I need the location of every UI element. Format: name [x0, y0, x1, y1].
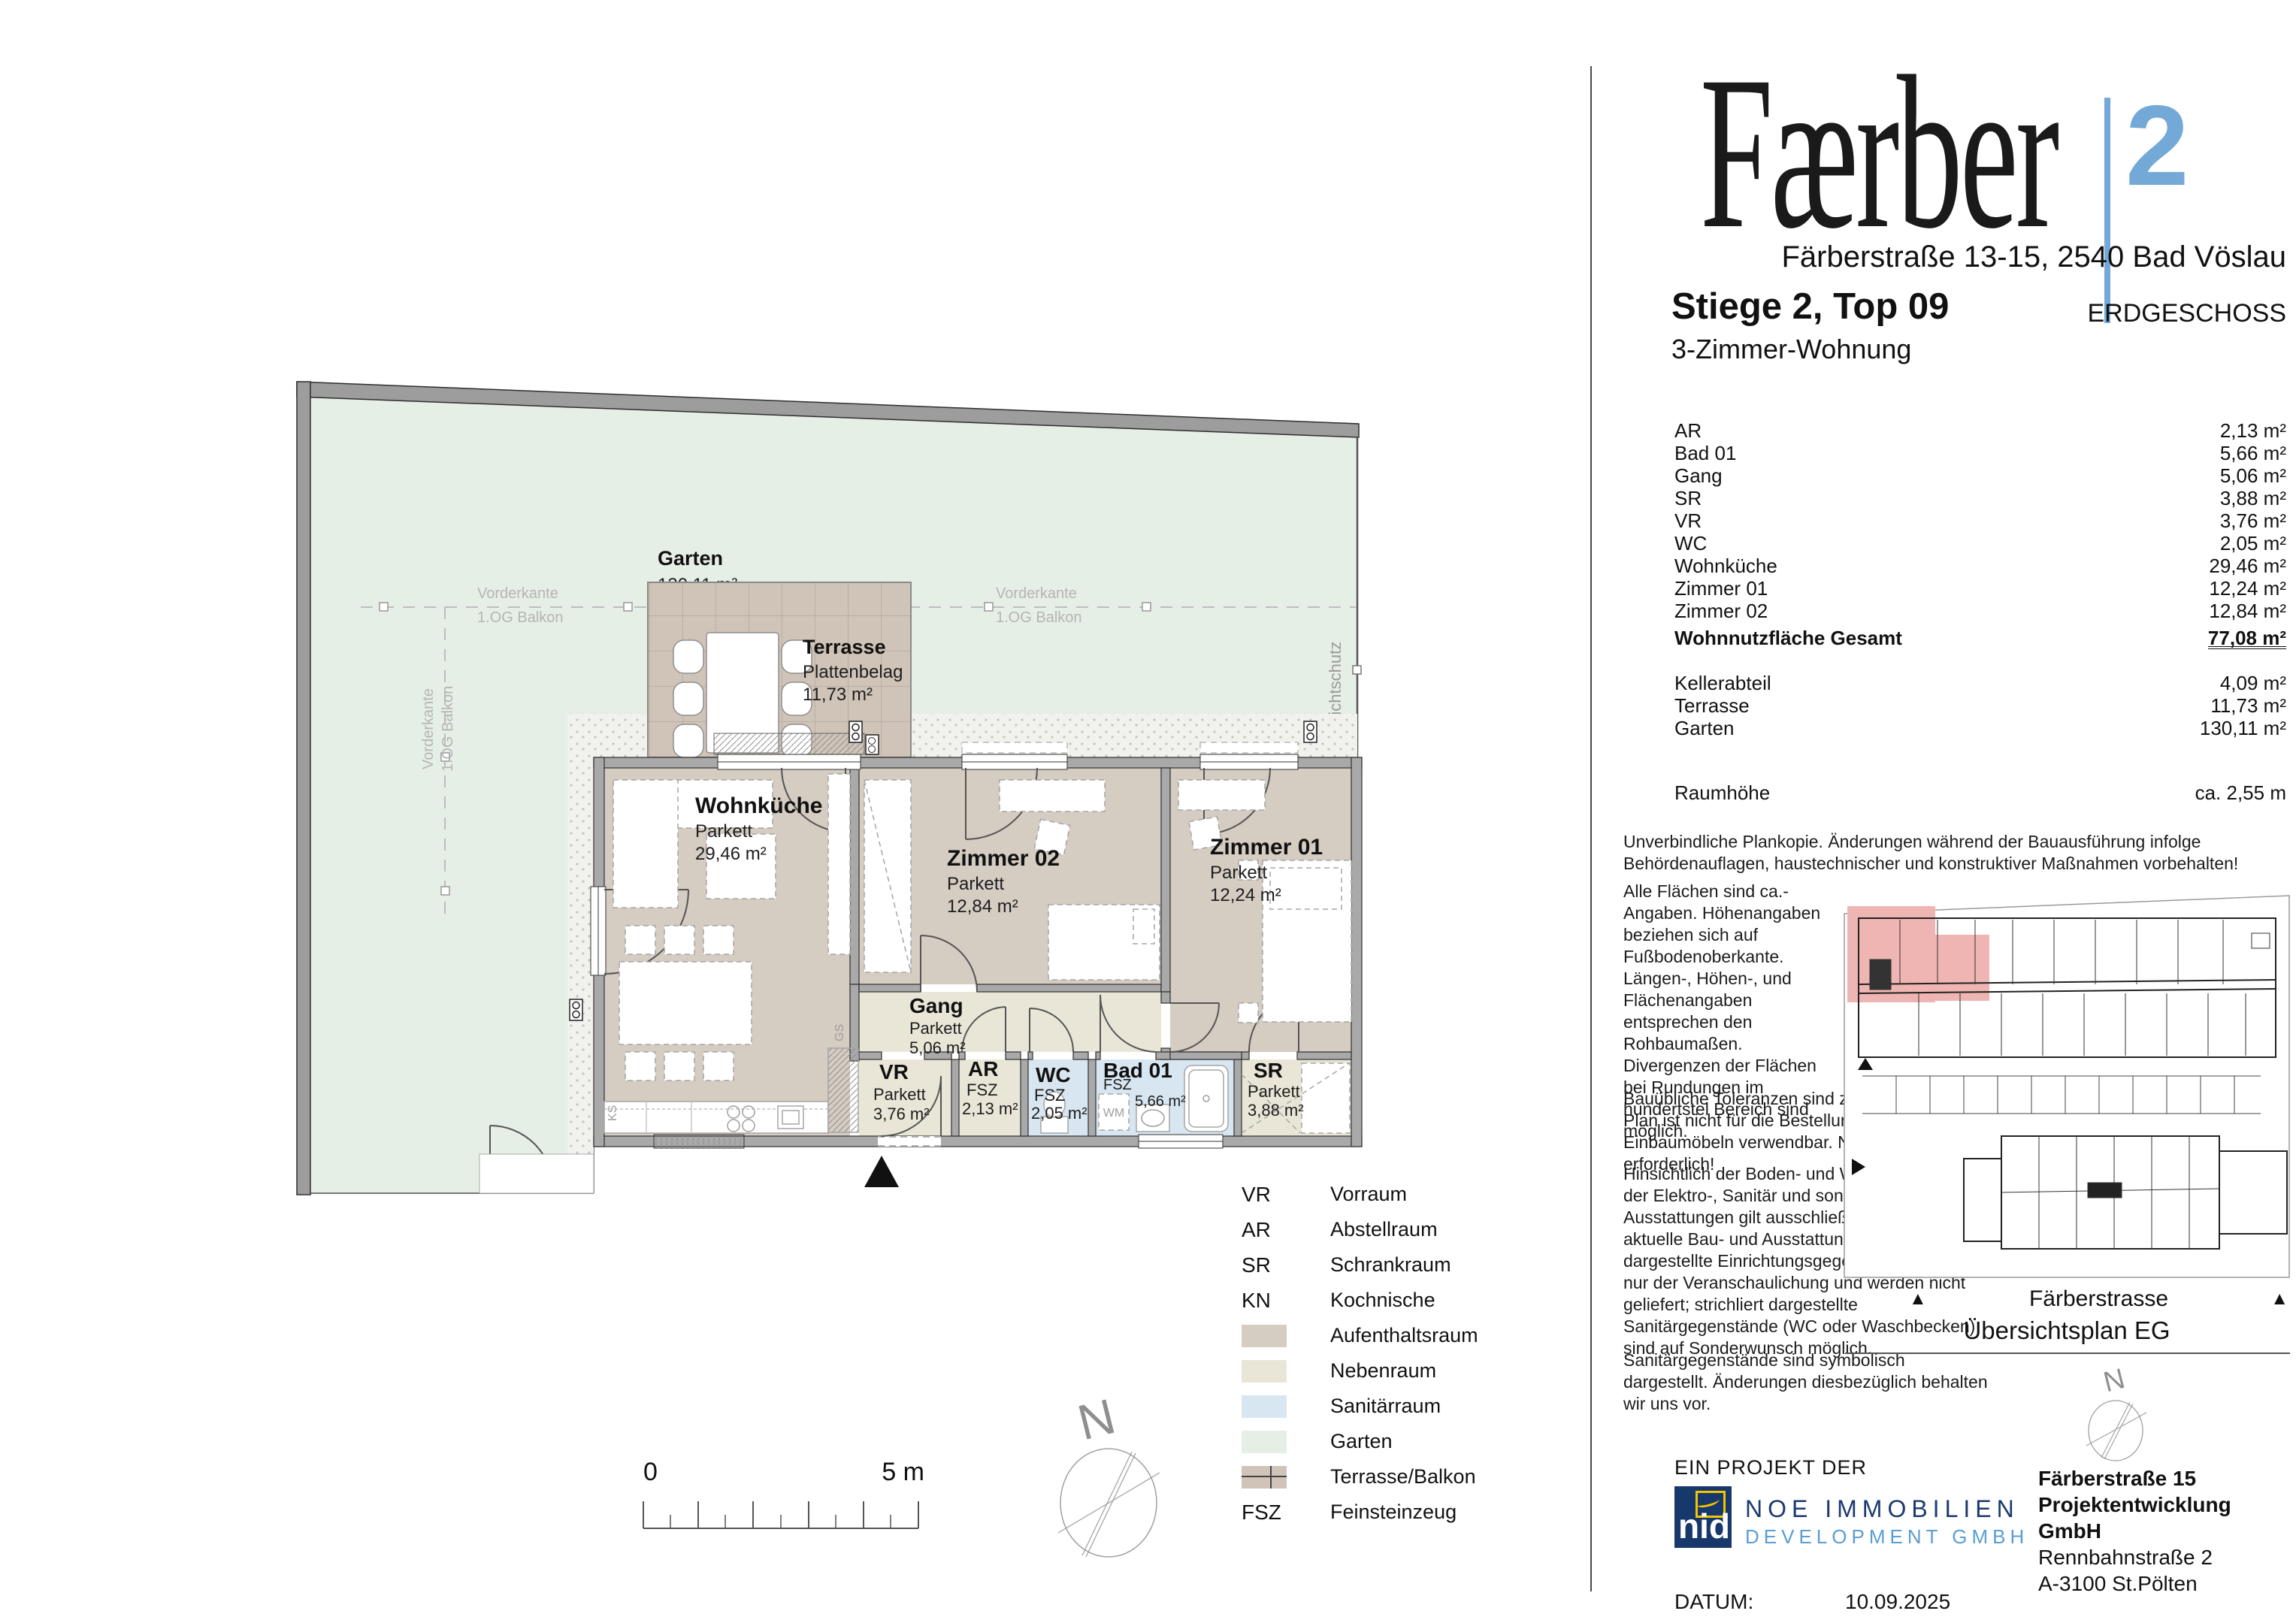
legend-row-aufenthaltsraum: Aufenthaltsraum — [1242, 1318, 1572, 1353]
scale-start: 0 — [643, 1458, 658, 1486]
svg-text:FSZ: FSZ — [966, 1080, 998, 1099]
developer-line: Rennbahnstraße 2 — [2038, 1544, 2296, 1570]
svg-text:FSZ: FSZ — [1103, 1077, 1132, 1093]
developer-line: Projektentwicklung GmbH — [2038, 1492, 2296, 1544]
disclaimer-paragraph: Unverbindliche Plankopie. Änderungen wäh… — [1623, 831, 2296, 875]
legend-label: Aufenthaltsraum — [1330, 1324, 1478, 1347]
garden-name: Garten — [658, 547, 723, 570]
svg-text:12,24 m²: 12,24 m² — [1210, 885, 1281, 905]
legend-abbr: KN — [1242, 1289, 1330, 1313]
overview-plan — [1840, 888, 2291, 1285]
compass-rose: N — [1043, 1389, 1175, 1565]
legend-label: Kochnische — [1330, 1289, 1435, 1312]
project-label: EIN PROJEKT DER — [1674, 1456, 1867, 1479]
legend-swatch-sanitaerraum — [1242, 1395, 1287, 1418]
svg-text:3,88 m²: 3,88 m² — [1248, 1101, 1304, 1120]
svg-text:Parkett: Parkett — [873, 1085, 926, 1104]
legend-swatch-garten — [1242, 1431, 1287, 1453]
legend-abbr: FSZ — [1242, 1501, 1330, 1525]
table-row: AR2,13 m² — [1674, 419, 2286, 442]
legend-label: Sanitärraum — [1330, 1395, 1441, 1418]
legend-label: Garten — [1330, 1430, 1393, 1453]
nid-logo-text: nid — [1678, 1506, 1730, 1546]
vorderkante-left-1: Vorderkante — [477, 585, 558, 602]
legend-row-ar: AR Abstellraum — [1242, 1212, 1572, 1247]
svg-text:3,76 m²: 3,76 m² — [873, 1105, 930, 1123]
vorderkante-right-1: Vorderkante — [996, 585, 1077, 602]
legend-label: Vorraum — [1330, 1183, 1407, 1206]
gs-label: GS — [833, 1024, 846, 1041]
overview-underline — [1845, 1352, 2290, 1354]
ks-label: KS — [607, 1105, 619, 1121]
svg-text:29,46 m²: 29,46 m² — [695, 844, 767, 864]
triangle-icon: ▲ — [1909, 1288, 1927, 1310]
garden-gate-step — [479, 1154, 594, 1193]
table-row: VR3,76 m² — [1674, 509, 2286, 532]
svg-text:AR: AR — [968, 1057, 998, 1080]
compass-north-label: N — [1072, 1389, 1121, 1450]
developer-line: Färberstraße 15 — [2038, 1465, 2296, 1492]
vorderkante-left-2: 1.OG Balkon — [477, 609, 564, 626]
scale-bar: 0 5 m — [637, 1456, 930, 1539]
company-subtitle: DEVELOPMENT GMBH — [1745, 1525, 2028, 1549]
svg-text:WC: WC — [1036, 1063, 1071, 1087]
legend-abbr: SR — [1242, 1253, 1330, 1277]
overview-street-label: ▲ Färberstrasse ▲ — [1909, 1286, 2288, 1312]
svg-text:Parkett: Parkett — [1248, 1082, 1300, 1101]
date-value: 10.09.2025 — [1845, 1590, 1950, 1614]
svg-text:Zimmer 01: Zimmer 01 — [1210, 835, 1323, 860]
terrace: Terrasse Plattenbelag 11,73 m² — [648, 582, 911, 757]
svg-text:Wohnküche: Wohnküche — [695, 793, 822, 818]
svg-text:Zimmer 02: Zimmer 02 — [947, 846, 1060, 871]
legend: VR Vorraum AR Abstellraum SR Schrankraum… — [1242, 1177, 1572, 1530]
legend-row-sr: SR Schrankraum — [1242, 1247, 1572, 1283]
table-total-row: Wohnnutzfläche Gesamt77,08 m² — [1674, 627, 2286, 649]
svg-text:5,66 m²: 5,66 m² — [1135, 1093, 1186, 1110]
legend-row-garten: Garten — [1242, 1424, 1572, 1459]
legend-row-sanitaerraum: Sanitärraum — [1242, 1389, 1572, 1424]
sichtschutz-label: Sichtschutz — [1326, 642, 1345, 727]
legend-label: Schrankraum — [1330, 1253, 1451, 1277]
legend-swatch-terrasse — [1242, 1466, 1287, 1489]
vorderkante-vert-2: 1.OG Balkon — [440, 686, 456, 772]
legend-row-kn: KN Kochnische — [1242, 1283, 1572, 1318]
vorderkante-vert-1: Vorderkante — [420, 688, 437, 769]
legend-label: Nebenraum — [1330, 1359, 1436, 1383]
svg-text:Gang: Gang — [909, 994, 963, 1017]
table-row: Zimmer 0212,84 m² — [1674, 600, 2286, 622]
triangle-icon: ▲ — [2270, 1288, 2288, 1310]
table-row: Bad 015,66 m² — [1674, 442, 2286, 464]
svg-text:2,05 m²: 2,05 m² — [1031, 1104, 1087, 1123]
legend-swatch-nebenraum — [1242, 1360, 1287, 1383]
svg-text:12,84 m²: 12,84 m² — [947, 896, 1018, 917]
disclaimer-paragraph: Sanitärgegenstände sind symbolisch darge… — [1623, 1349, 1993, 1415]
legend-abbr: VR — [1242, 1183, 1330, 1207]
table-row: SR3,88 m² — [1674, 487, 2286, 509]
overview-compass: N — [2074, 1362, 2157, 1467]
legend-row-terrasse: Terrasse/Balkon — [1242, 1459, 1572, 1495]
legend-row-vr: VR Vorraum — [1242, 1177, 1572, 1212]
street-name: Färberstrasse — [2029, 1286, 2168, 1312]
terrace-material: Plattenbelag — [803, 662, 903, 682]
table-row: Wohnküche29,46 m² — [1674, 555, 2286, 577]
svg-text:Parkett: Parkett — [1210, 863, 1267, 883]
table-row: WC2,05 m² — [1674, 532, 2286, 555]
terrace-area-value: 11,73 m² — [803, 685, 873, 705]
compass-north-label: N — [2101, 1363, 2128, 1398]
table-row: Garten130,11 m² — [1674, 717, 2286, 739]
svg-text:2,13 m²: 2,13 m² — [962, 1099, 1018, 1118]
unit-title: Stiege 2, Top 09 — [1671, 286, 1949, 328]
table-row: Kellerabteil4,09 m² — [1674, 672, 2286, 694]
company-name: NOE IMMOBILIEN — [1745, 1495, 2019, 1523]
floor-plan-drawing: Sichtschutz Vorderkante 1.OG Balkon Vord… — [286, 368, 1375, 1232]
highlighted-unit-rooms — [1935, 935, 1989, 1001]
svg-text:Parkett: Parkett — [947, 874, 1004, 894]
terrace-name: Terrasse — [803, 636, 886, 658]
floor-plan-sheet: Sichtschutz Vorderkante 1.OG Balkon Vord… — [0, 0, 2296, 1623]
svg-text:FSZ: FSZ — [1034, 1086, 1066, 1105]
svg-text:5,06 m²: 5,06 m² — [909, 1038, 966, 1057]
scale-end: 5 m — [882, 1458, 924, 1486]
vorderkante-right-2: 1.OG Balkon — [996, 609, 1082, 626]
svg-text:Parkett: Parkett — [695, 821, 752, 842]
brand-logo-bar — [2104, 98, 2110, 323]
nid-logo: nid — [1674, 1486, 1732, 1548]
wm-label: WM — [1103, 1107, 1124, 1120]
brand-logo-text: Færber — [1700, 44, 2057, 263]
developer-line: A-3100 St.Pölten — [2038, 1570, 2296, 1597]
brand-logo-superscript: 2 — [2125, 89, 2189, 203]
unit-type: 3-Zimmer-Wohnung — [1671, 334, 1911, 365]
table-row: Terrasse11,73 m² — [1674, 694, 2286, 717]
legend-swatch-aufenthaltsraum — [1242, 1325, 1287, 1347]
svg-text:Parkett: Parkett — [909, 1019, 962, 1038]
entrance-arrow — [864, 1156, 899, 1187]
legend-row-nebenraum: Nebenraum — [1242, 1353, 1572, 1389]
area-table: AR2,13 m² Bad 015,66 m² Gang5,06 m² SR3,… — [1674, 419, 2286, 804]
legend-label: Feinsteinzeug — [1330, 1501, 1457, 1524]
table-row: Zimmer 0112,24 m² — [1674, 577, 2286, 600]
brand-address: Färberstraße 13-15, 2540 Bad Vöslau — [1601, 240, 2286, 274]
legend-row-fsz: FSZ Feinsteinzeug — [1242, 1495, 1572, 1530]
date-label: DATUM: — [1674, 1590, 1753, 1614]
overview-caption: Übersichtsplan EG — [1845, 1316, 2288, 1345]
table-row: Gang5,06 m² — [1674, 464, 2286, 487]
table-room-height-row: Raumhöheca. 2,55 m — [1674, 781, 2286, 804]
svg-text:VR: VR — [879, 1060, 909, 1084]
developer-address: Färberstraße 15 Projektentwicklung GmbH … — [2038, 1465, 2296, 1597]
legend-abbr: AR — [1242, 1218, 1330, 1242]
svg-text:SR: SR — [1254, 1059, 1283, 1082]
panel-divider — [1590, 66, 1592, 1591]
unit-floor: ERDGESCHOSS — [1986, 299, 2286, 328]
legend-label: Terrasse/Balkon — [1330, 1465, 1476, 1489]
legend-label: Abstellraum — [1330, 1218, 1438, 1241]
